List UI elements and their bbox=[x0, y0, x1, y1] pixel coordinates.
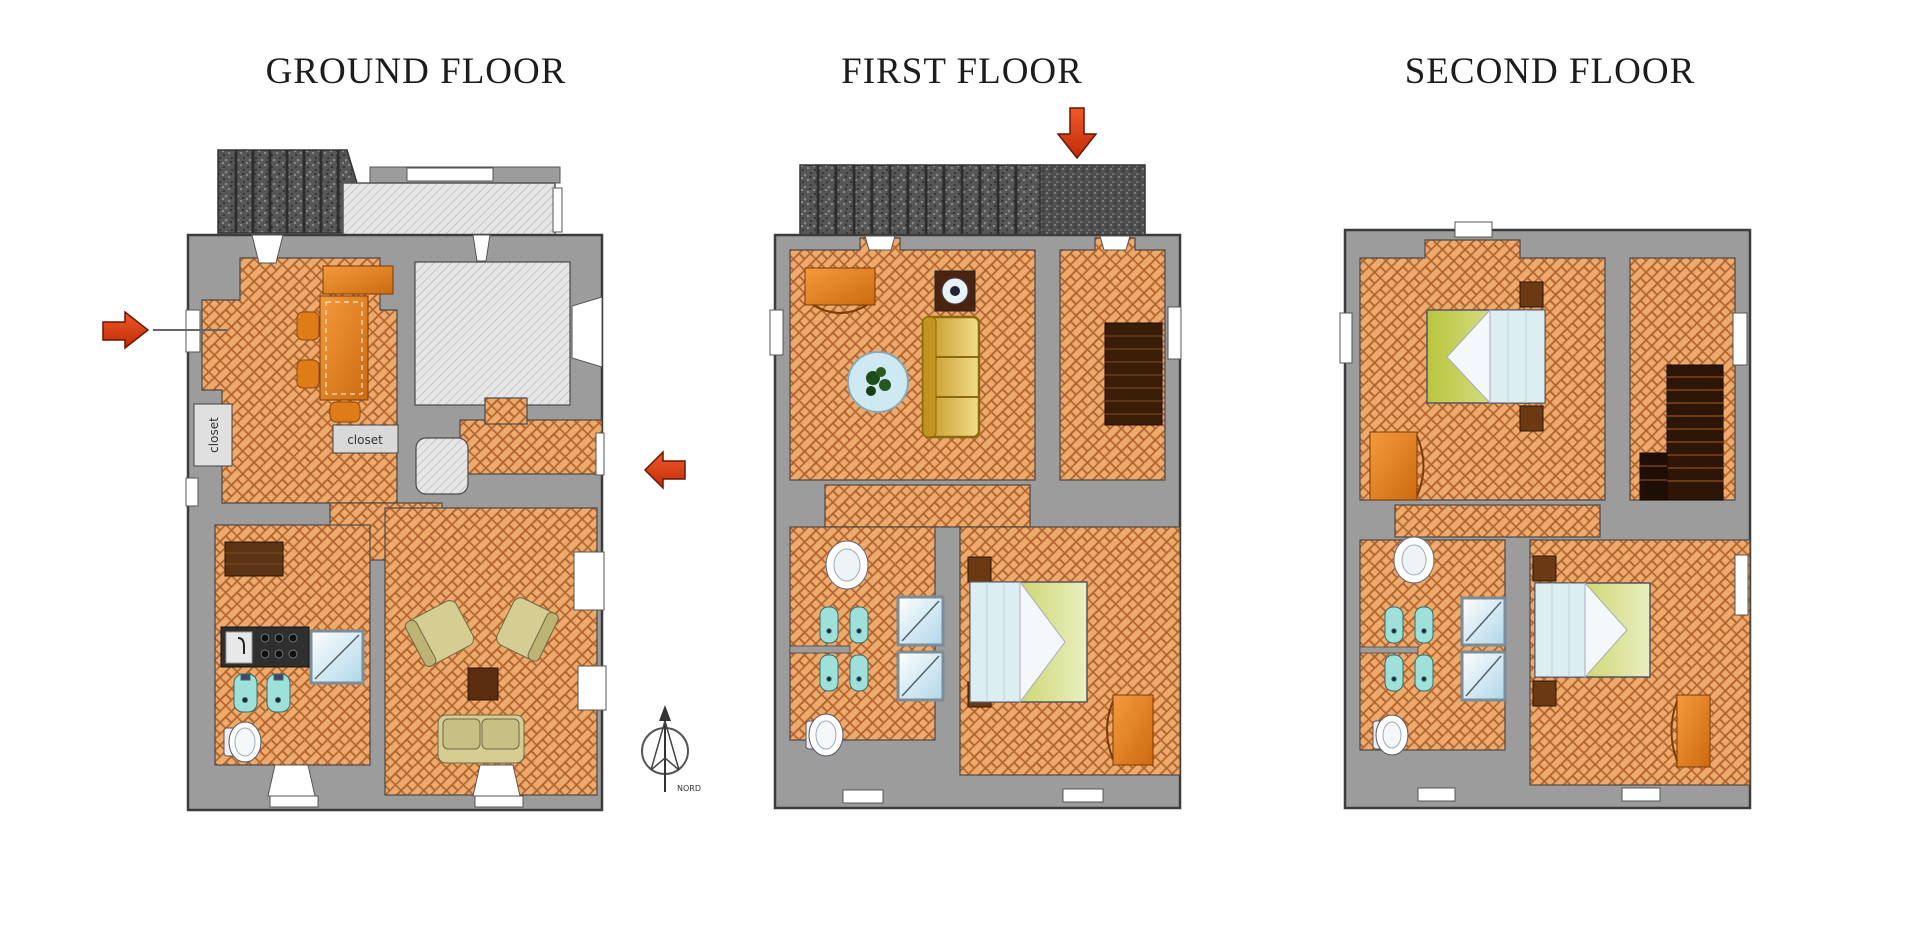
kitchen-counter bbox=[221, 627, 309, 667]
dining-table bbox=[320, 296, 368, 400]
chair bbox=[330, 402, 360, 422]
svg-text:closet: closet bbox=[207, 417, 221, 453]
sofa-yellow bbox=[923, 317, 979, 437]
passage bbox=[485, 398, 527, 424]
sink bbox=[826, 541, 868, 589]
wood-cabinet bbox=[225, 542, 283, 576]
round-table-with-plant bbox=[848, 352, 908, 412]
svg-text:closet: closet bbox=[347, 433, 383, 447]
double-bed bbox=[1535, 583, 1650, 677]
dresser-orange bbox=[1107, 695, 1153, 765]
nightstand bbox=[1533, 556, 1556, 581]
nightstand bbox=[1520, 282, 1543, 307]
kitchen-sink bbox=[226, 632, 252, 663]
floor-plan-first bbox=[765, 95, 1195, 820]
floor-title-first: FIRST FLOOR bbox=[841, 50, 1083, 93]
wardrobe-dark bbox=[1105, 323, 1162, 425]
down-arrow-icon bbox=[1058, 108, 1096, 158]
bath-divider-wall bbox=[1360, 647, 1418, 653]
closet-wall-label: closet bbox=[194, 404, 232, 466]
hallway bbox=[825, 485, 1030, 527]
compass-icon: NORD bbox=[642, 705, 701, 793]
sink bbox=[1394, 537, 1434, 583]
entrance-arrow-left-icon bbox=[645, 452, 685, 488]
shower bbox=[311, 631, 363, 683]
roof-band bbox=[800, 165, 1145, 235]
nightstand bbox=[968, 557, 991, 582]
stair-landing bbox=[416, 438, 468, 494]
floorplan-sheet: GROUND FLOOR FIRST FLOOR SECOND FLOOR bbox=[0, 0, 1920, 936]
floor-plan-ground: closet closet bbox=[90, 140, 710, 840]
chair bbox=[297, 312, 319, 340]
coffee-table bbox=[468, 668, 498, 700]
sofa bbox=[438, 715, 524, 763]
floor-plan-second bbox=[1335, 210, 1765, 820]
floor-title-second: SECOND FLOOR bbox=[1405, 50, 1696, 93]
hallway bbox=[1395, 505, 1600, 537]
room-storage-hatched bbox=[415, 262, 570, 405]
closet-hall-label: closet bbox=[333, 425, 398, 453]
vestibule bbox=[460, 420, 602, 474]
nightstand bbox=[1533, 681, 1556, 706]
sideboard bbox=[323, 266, 393, 294]
wood-stove bbox=[935, 271, 975, 311]
toilet bbox=[224, 722, 261, 762]
dresser-orange bbox=[1672, 695, 1711, 767]
svg-text:NORD: NORD bbox=[677, 784, 701, 793]
double-bed bbox=[1427, 310, 1545, 403]
terrace bbox=[343, 167, 562, 235]
bath-divider-wall bbox=[790, 646, 850, 653]
double-bed bbox=[970, 582, 1087, 702]
toilet bbox=[1373, 715, 1408, 755]
chair bbox=[297, 360, 319, 388]
nightstand bbox=[1520, 406, 1543, 431]
wardrobe-orange bbox=[1370, 432, 1424, 500]
floor-title-ground: GROUND FLOOR bbox=[266, 50, 567, 93]
